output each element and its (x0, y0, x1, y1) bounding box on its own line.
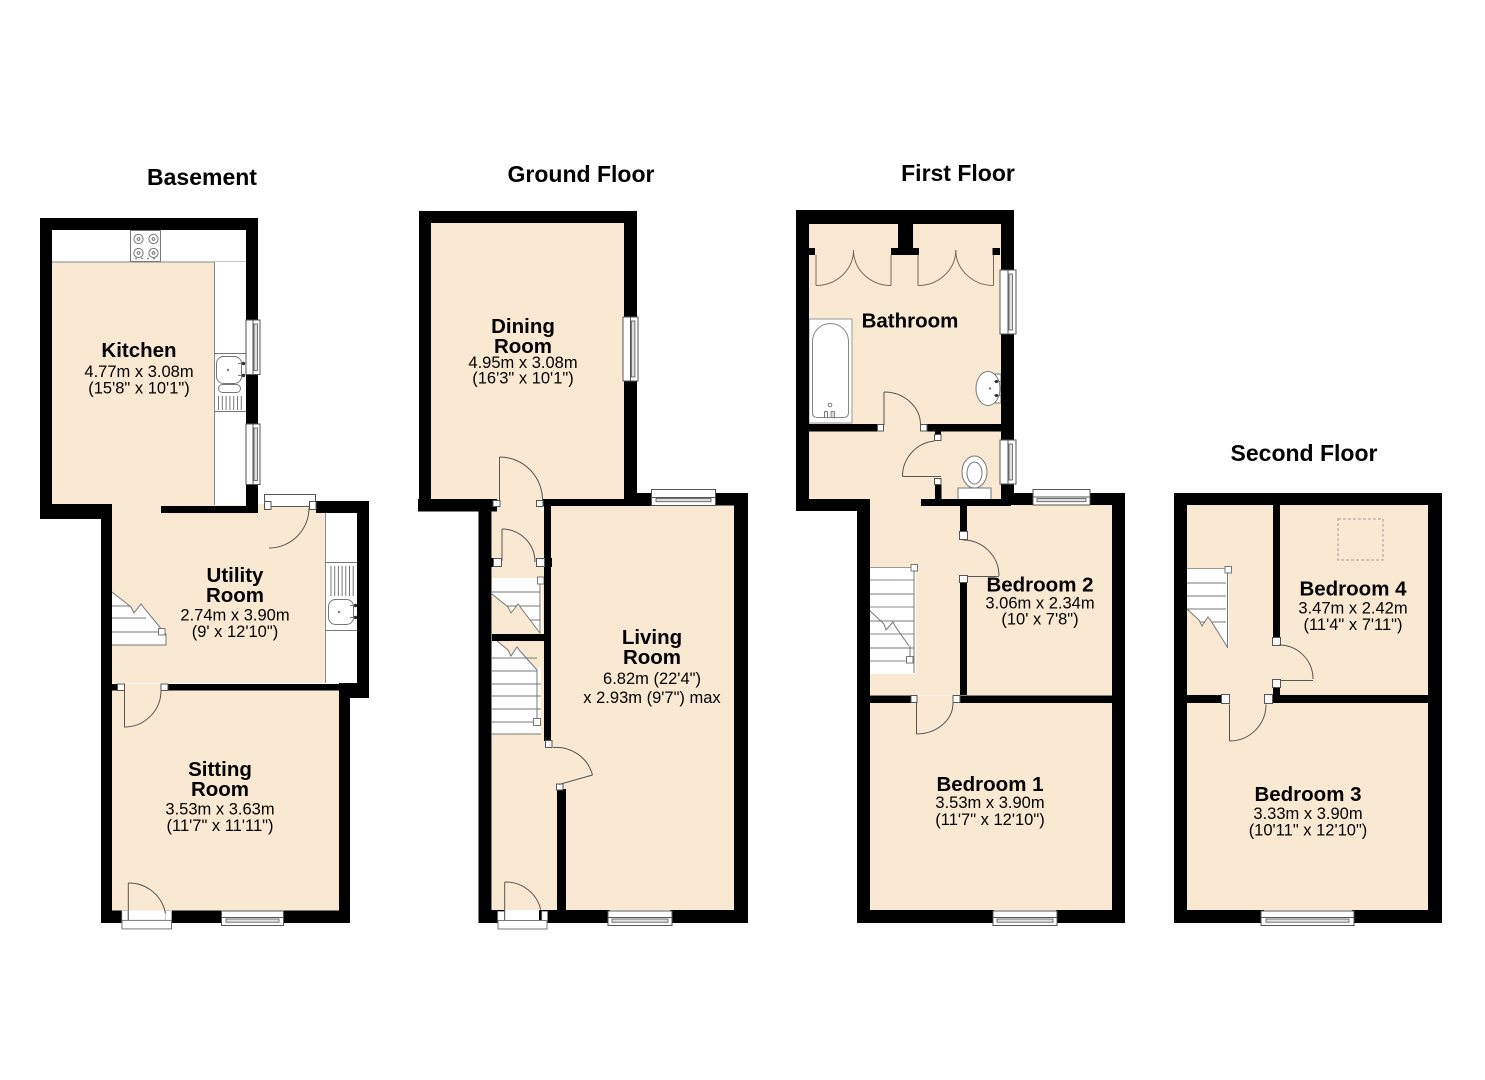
svg-text:x 2.93m (9'7") max: x 2.93m (9'7") max (583, 689, 721, 707)
svg-text:Second Floor: Second Floor (1231, 440, 1378, 466)
svg-text:Ground Floor: Ground Floor (508, 161, 655, 187)
svg-text:Bathroom: Bathroom (862, 310, 959, 333)
svg-text:Room: Room (206, 584, 264, 607)
svg-text:Bedroom 3: Bedroom 3 (1254, 783, 1361, 806)
svg-text:Kitchen: Kitchen (101, 339, 176, 362)
svg-text:Room: Room (623, 646, 681, 669)
svg-text:3.47m x 2.42m: 3.47m x 2.42m (1298, 600, 1407, 618)
svg-text:2.74m x 3.90m: 2.74m x 3.90m (180, 607, 289, 625)
svg-text:(11'4" x 7'11"): (11'4" x 7'11") (1303, 616, 1402, 634)
svg-text:4.77m x 3.08m: 4.77m x 3.08m (84, 363, 193, 381)
svg-text:Bedroom 4: Bedroom 4 (1299, 578, 1407, 601)
svg-text:3.33m x 3.90m: 3.33m x 3.90m (1253, 805, 1362, 823)
svg-text:(15'8" x 10'1"): (15'8" x 10'1") (88, 380, 189, 398)
svg-text:Room: Room (191, 778, 249, 801)
svg-text:Basement: Basement (147, 164, 257, 190)
svg-text:3.53m x 3.63m: 3.53m x 3.63m (165, 801, 274, 819)
svg-text:(9' x 12'10"): (9' x 12'10") (192, 623, 278, 641)
svg-text:(10'11" x 12'10"): (10'11" x 12'10") (1249, 822, 1368, 840)
svg-text:3.53m x 3.90m: 3.53m x 3.90m (935, 794, 1044, 812)
svg-text:(11'7" x 12'10"): (11'7" x 12'10") (935, 811, 1044, 829)
svg-text:(16'3" x 10'1"): (16'3" x 10'1") (472, 370, 573, 388)
svg-text:(10' x 7'8"): (10' x 7'8") (1001, 611, 1078, 629)
svg-text:First Floor: First Floor (901, 160, 1015, 186)
svg-text:Bedroom 1: Bedroom 1 (936, 773, 1043, 796)
svg-text:6.82m (22'4"): 6.82m (22'4") (603, 670, 701, 688)
svg-text:Bedroom 2: Bedroom 2 (986, 574, 1093, 597)
svg-text:(11'7" x 11'11"): (11'7" x 11'11") (167, 817, 274, 835)
